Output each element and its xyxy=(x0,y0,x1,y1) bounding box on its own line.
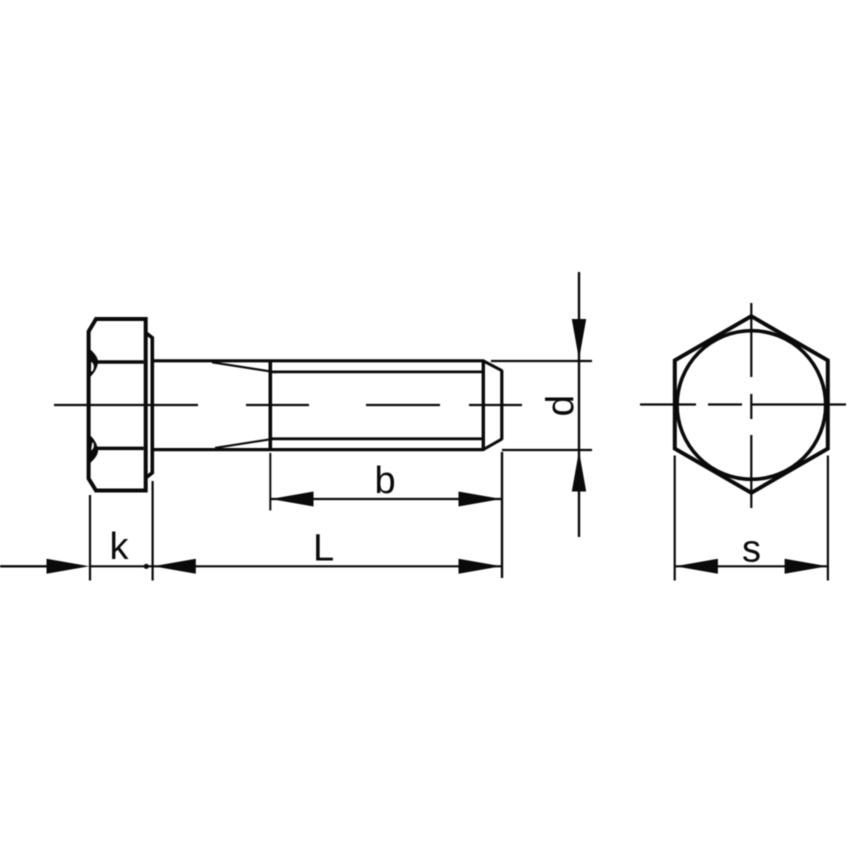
svg-text:d: d xyxy=(539,395,582,417)
svg-text:k: k xyxy=(110,526,130,568)
svg-text:b: b xyxy=(375,460,396,502)
svg-text:L: L xyxy=(313,528,334,570)
svg-text:s: s xyxy=(742,529,761,571)
